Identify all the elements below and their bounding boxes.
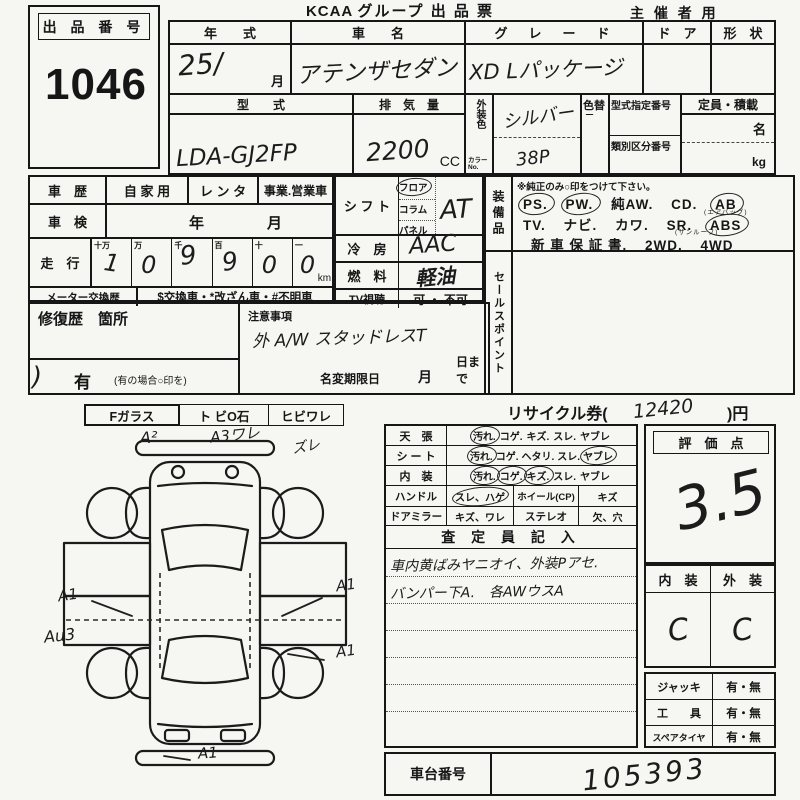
recycle-label-post: )円 <box>727 400 748 424</box>
vehicle-table-bottom: 型 式 LDA-GJ2FP 排 気 量 2200 CC 外装色 カラーNo. シ… <box>168 95 776 175</box>
ceiling-scratch: キズ. <box>527 428 550 443</box>
equipment-note: ※純正のみ○印をつけて下さい。 <box>517 179 655 193</box>
displacement-value: 2200 <box>365 134 430 167</box>
inspection-year-label: 年 <box>189 212 204 233</box>
equip-2wd: 2WD. <box>645 238 683 253</box>
exterior-grade-header: 外 装 <box>711 566 774 592</box>
caution-value: 外 A/W スタッドレスT <box>252 321 427 352</box>
shift-option-floor: フロア <box>399 180 428 194</box>
class-code-header: 類別区分番号 <box>610 136 680 155</box>
car-name-header: 車 名 <box>292 22 464 45</box>
car-name-value: アテンザセダン <box>295 48 458 90</box>
car-topview-drawing <box>40 428 370 780</box>
repair-has-label: 有 <box>74 368 91 393</box>
headlight-right <box>226 466 238 478</box>
exterior-color-value: シルバー <box>501 98 576 134</box>
sheet-title: KCAA グループ 出 品 票 <box>240 0 560 21</box>
annotation-arrow-right <box>282 598 322 616</box>
digit-100: 9 <box>220 246 240 277</box>
interior-wear: スレ. <box>553 468 576 483</box>
stereo-items: 欠、穴 <box>579 507 636 525</box>
history-business: 事業.営業車 <box>259 177 332 203</box>
glass-f-label: Fガラス <box>84 404 180 426</box>
caution-box: 注意事項 外 A/W スタッドレスT 名変期限日 月 日まで <box>240 302 490 395</box>
interior-dirt: 汚れ. <box>473 468 496 483</box>
inspector-note-2: バンパー下A. 各AWウスA <box>390 580 564 603</box>
annotation-au3: Au3 <box>43 624 76 646</box>
ceiling-tear: ヤブレ <box>580 428 610 443</box>
seat-label: シ ー ト <box>386 446 447 465</box>
digit-100k: 1 <box>102 248 121 278</box>
annotation-a1-right2: A1 <box>335 641 357 662</box>
grade-value: XD Lパッケージ <box>469 51 623 86</box>
mirror-label: ドアミラー <box>386 507 447 525</box>
shift-value: AT <box>439 194 472 226</box>
glass-crack-label: ヒビワレ <box>269 404 344 426</box>
chassis-box: 車台番号 105393 <box>384 752 776 796</box>
chassis-value: 105393 <box>581 752 709 798</box>
annotation-arrow-left <box>92 601 132 616</box>
grade-header: グ レ ー ド <box>466 22 642 45</box>
rear-plate-right <box>221 730 245 741</box>
brand-logo: KCAA <box>306 3 353 20</box>
interior-burn: コゲ. <box>500 468 523 483</box>
equipment-line1: PS. PW. 純AW. CD. AB (エアバッグ) <box>523 193 750 213</box>
rear-window <box>162 636 248 683</box>
interior-tear: ヤブレ <box>580 468 610 483</box>
equipment-box: 装備品 ※純正のみ○印をつけて下さい。 PS. PW. 純AW. CD. AB … <box>484 175 795 252</box>
tool-value: 有・無 <box>713 700 774 725</box>
equip-ps: PS. <box>523 197 548 212</box>
equip-cd: CD. <box>671 197 697 212</box>
repair-history-box: 修復歴 箇所 有 (有の場合○印を) ) <box>28 302 240 395</box>
equip-warranty: 新 車 保 証 書. <box>531 238 627 253</box>
inspector-note-1: 車内黄ばみヤニオイ、外装Pアセ. <box>390 552 599 576</box>
wheel-label: ホイール(CP) <box>514 486 579 506</box>
headlight-left <box>172 466 184 478</box>
glass-strip: Fガラス ト ビO石 ヒビワレ <box>84 404 344 426</box>
digit-10k: 0 <box>141 251 156 279</box>
color-no-header: カラーNo. <box>468 157 490 171</box>
handle-label: ハンドル <box>386 486 447 506</box>
score-box: 評 価 点 3.5 <box>644 424 776 564</box>
auction-sheet: KCAA グループ 出 品 票 主 催 者 用 出 品 番 号 1046 年 式… <box>0 0 800 800</box>
color-cell-divider <box>494 137 580 138</box>
digit-label-10k: 万 <box>134 240 142 251</box>
equip-navi: ナビ. <box>564 218 598 233</box>
year-header: 年 式 <box>170 22 290 45</box>
recolor-label: 色替 <box>583 97 605 113</box>
deadline-month: 月 <box>418 367 432 387</box>
model-code-header: 型 式 <box>170 95 352 115</box>
equip-pw: PW. <box>566 197 594 212</box>
repair-mark-arc: ) <box>32 362 42 392</box>
chassis-label: 車台番号 <box>386 754 492 794</box>
mileage-unit: km <box>318 273 331 284</box>
fuel-value: 軽油 <box>414 259 456 291</box>
tool-label: 工 具 <box>646 700 713 725</box>
recycle-line: リサイクル券( 12420 )円 <box>495 398 795 424</box>
vehicle-table-top: 年 式 25/ 月 車 名 アテンザセダン グ レ ー ド XD Lパッケージ … <box>168 20 776 95</box>
repair-history-label: 修復歴 箇所 <box>38 308 128 329</box>
interior-scratch: キズ. <box>527 468 550 483</box>
sales-point-area <box>513 252 793 393</box>
seat-dirt: 汚れ. <box>470 448 493 463</box>
recycle-value: 12420 <box>632 395 694 423</box>
seat-sag: ヘタリ. <box>522 448 555 463</box>
ceiling-label: 天 張 <box>386 426 447 445</box>
type-cert-header: 型式指定番号 <box>610 95 680 114</box>
inspector-header: 査 定 員 記 入 <box>386 526 636 549</box>
fuel-header: 燃 料 <box>336 263 399 288</box>
history-rental: レ ン タ <box>189 177 259 203</box>
seat-items: 汚れ. コゲ. ヘタリ. スレ. ヤブレ <box>447 446 636 465</box>
digit-1: 0 <box>300 251 315 279</box>
annotation-a1-left: A1 <box>57 585 79 606</box>
equip-aw: 純AW. <box>611 197 653 212</box>
inspection-header: 車 検 <box>30 205 107 237</box>
capacity-kg-unit: kg <box>752 155 766 169</box>
seat-tear: ヤブレ <box>583 448 613 463</box>
interior-grade-value: C <box>665 611 691 649</box>
sheet-title-text: グループ 出 品 票 <box>357 3 494 20</box>
equip-4wd: 4WD <box>701 238 734 253</box>
equip-kawa: カワ. <box>615 218 649 233</box>
digit-label-1: 一 <box>295 240 303 251</box>
ceiling-burn: コゲ. <box>500 428 523 443</box>
month-label: 月 <box>271 71 284 90</box>
ac-value: AAC <box>408 230 457 259</box>
jack-label: ジャッキ <box>646 674 713 699</box>
sales-point-header: セールスポイント <box>491 271 507 375</box>
score-value: 3.5 <box>667 456 773 544</box>
inspection-month-label: 月 <box>267 212 282 233</box>
mileage-header: 走 行 <box>30 239 92 286</box>
color-no-value: 38P <box>515 146 551 170</box>
digit-label-10: 十 <box>255 240 263 251</box>
seat-burn: コゲ. <box>496 448 519 463</box>
accessories-box: ジャッキ 有・無 工 具 有・無 スペアタイヤ 有・無 <box>644 672 776 748</box>
ceiling-wear: スレ. <box>553 428 576 443</box>
grade-box: 内 装 外 装 C C <box>644 564 776 668</box>
interior-items: 汚れ. コゲ. キズ. スレ. ヤブレ <box>447 466 636 485</box>
condition-table: 天 張 汚れ. コゲ. キズ. スレ. ヤブレ シ ー ト 汚れ. コゲ. ヘタ… <box>384 424 638 748</box>
displacement-header: 排 気 量 <box>354 95 464 115</box>
annotation-arrow-bottom <box>164 756 190 760</box>
interior-grade-header: 内 装 <box>646 566 711 592</box>
caution-label: 注意事項 <box>248 308 292 324</box>
stereo-label: ステレオ <box>514 507 579 525</box>
shift-header: シ フ ト <box>336 177 399 234</box>
inspector-notes-area: 車内黄ばみヤニオイ、外装Pアセ. バンパー下A. 各AWウスA <box>386 549 636 734</box>
ceiling-items: 汚れ. コゲ. キズ. スレ. ヤブレ <box>447 426 636 445</box>
capacity-person-unit: 名 <box>753 119 766 138</box>
seat-wear: スレ. <box>557 448 580 463</box>
lot-number-value: 1046 <box>30 55 162 115</box>
deadline-day: 日まで <box>456 353 488 387</box>
door-front-right <box>260 543 346 596</box>
interior-label: 内 装 <box>386 466 447 485</box>
digit-1k: 9 <box>179 240 199 272</box>
shift-option-column: コラム <box>399 200 435 221</box>
wheel-items: キズ <box>579 486 636 506</box>
car-diagram: A² A3ワレ ズレ A1 Au3 A1 A1 A1 <box>40 428 370 780</box>
history-header: 車 歴 <box>30 177 107 203</box>
mirror-items: キズ、ワレ <box>447 507 514 525</box>
handle-items: スレ、ハゲ <box>447 486 514 506</box>
equipment-header: 装備品 <box>490 190 507 238</box>
model-code-value: LDA-GJ2FP <box>175 140 297 172</box>
digit-10: 0 <box>262 251 277 279</box>
shape-header: 形 状 <box>712 22 774 45</box>
exterior-color-header: 外装色 <box>472 99 487 145</box>
ac-header: 冷 房 <box>336 236 399 261</box>
score-header: 評 価 点 <box>653 431 769 454</box>
exterior-grade-value: C <box>730 611 756 649</box>
windshield <box>162 525 248 570</box>
year-value: 25/ <box>177 46 224 82</box>
car-body <box>150 462 260 744</box>
handle-wear-bald: スレ、ハゲ <box>455 489 505 504</box>
equipment-line3: 新 車 保 証 書. 2WD. 4WD <box>531 234 747 254</box>
capacity-divider <box>682 142 774 143</box>
deadline-label: 名変期限日 <box>320 370 380 387</box>
repair-has-note: (有の場合○印を) <box>114 372 187 387</box>
spare-tire-label: スペアタイヤ <box>646 726 713 748</box>
capacity-header: 定員・積載 <box>682 95 774 115</box>
equip-tv: TV. <box>523 218 546 233</box>
mileage-digits: 十万 1 万 0 千 9 百 9 十 0 <box>92 239 332 286</box>
recycle-label-pre: リサイクル券( <box>507 400 608 424</box>
equipment-line2: TV. ナビ. カワ. SR. ABS (サンルーフ) <box>523 214 754 234</box>
ceiling-dirt: 汚れ. <box>473 428 496 443</box>
spare-tire-value: 有・無 <box>713 726 774 748</box>
history-table: 車 歴 自 家 用 レ ン タ 事業.営業車 車 検 年 月 走 行 十万 1 … <box>28 175 334 302</box>
lot-number-label: 出 品 番 号 <box>38 13 150 40</box>
recolor-mark: ‾ <box>586 113 593 129</box>
lot-number-box: 出 品 番 号 1046 <box>28 5 160 169</box>
annotation-a2: A² <box>140 428 157 447</box>
controls-table: シ フ ト フロア コラム パネル AT 冷 房 AAC 燃 料 軽油 TV視聴… <box>334 175 484 302</box>
jack-value: 有・無 <box>713 674 774 699</box>
annotation-a1-right: A1 <box>335 575 357 596</box>
annotation-a1-bottom: A1 <box>197 743 218 762</box>
sales-point-box: セールスポイント <box>484 252 795 395</box>
rear-plate-left <box>165 730 189 741</box>
door-header: ド ア <box>644 22 710 45</box>
history-private: 自 家 用 <box>107 177 189 203</box>
repair-has-row: 有 (有の場合○印を) ) <box>30 358 238 399</box>
displacement-unit: CC <box>440 153 460 169</box>
